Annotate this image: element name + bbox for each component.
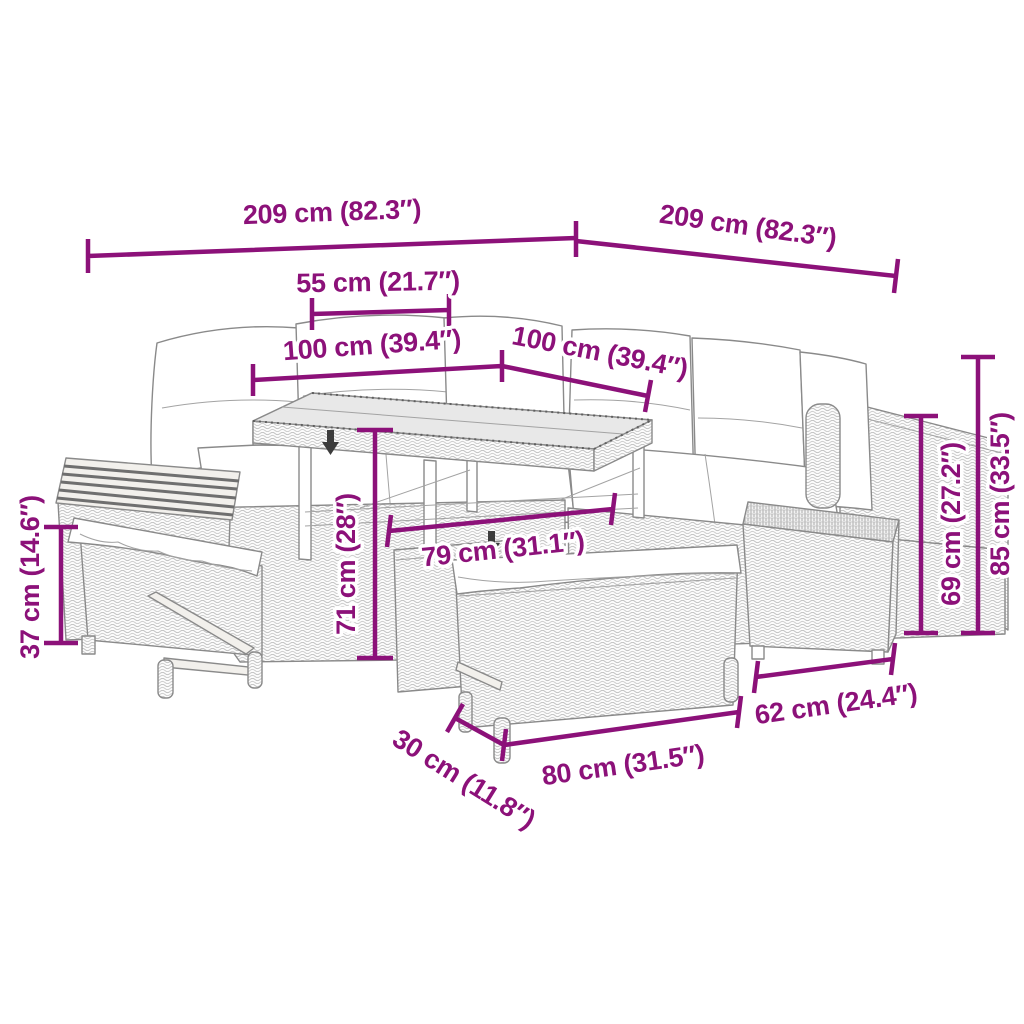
- footstool: [743, 502, 899, 664]
- sofa-right-armrest: [806, 404, 840, 508]
- dim-overall-width-right: 209 cm (82.3″): [576, 199, 898, 293]
- footstool-front: [743, 524, 893, 652]
- bench-left-leg: [82, 636, 95, 654]
- dim-label: 55 cm (21.7″): [296, 266, 460, 299]
- dim-label: 69 cm (27.2″): [936, 442, 966, 606]
- dim-label: 85 cm (33.5″): [985, 412, 1015, 576]
- table-leg: [299, 445, 311, 560]
- dim-label: 71 cm (28″): [331, 493, 361, 635]
- table-leg: [633, 443, 644, 518]
- dim-label: 209 cm (82.3″): [242, 194, 421, 230]
- dim-label: 37 cm (14.6″): [15, 495, 45, 659]
- dim-label: 62 cm (24.4″): [753, 678, 919, 730]
- dim-overall-width-left: 209 cm (82.3″): [88, 194, 576, 273]
- dim-label: 209 cm (82.3″): [658, 199, 839, 254]
- dim-footstool-depth: 62 cm (24.4″): [753, 643, 919, 730]
- bench-centre-leg: [724, 658, 738, 702]
- dim-label: 30 cm (11.8″): [387, 723, 540, 834]
- diagram-canvas: 209 cm (82.3″) 209 cm (82.3″) 55 cm (21.…: [0, 0, 1024, 1024]
- dim-label: 80 cm (31.5″): [540, 739, 706, 791]
- bench-left-leg: [248, 652, 262, 688]
- product-dimension-diagram: 209 cm (82.3″) 209 cm (82.3″) 55 cm (21.…: [0, 0, 1024, 1024]
- footstool-foot: [752, 646, 764, 659]
- bench-left-leg: [158, 660, 173, 698]
